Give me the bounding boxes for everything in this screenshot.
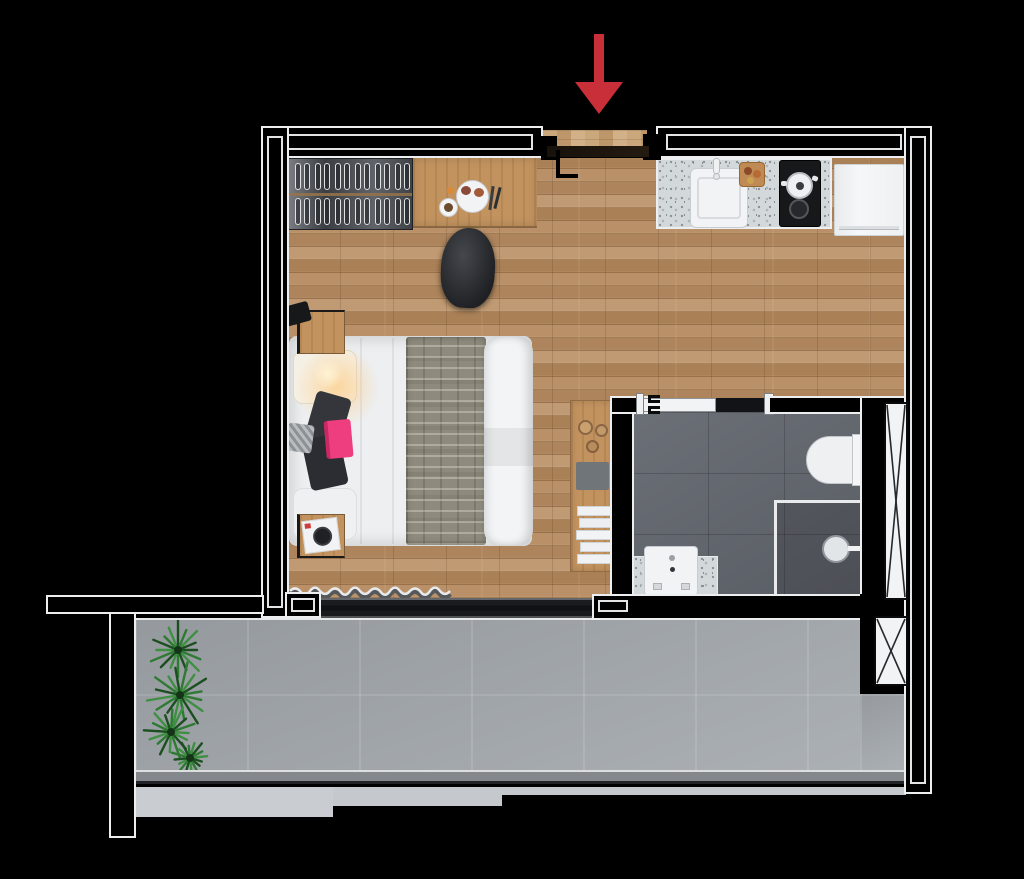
- vanity-drain: [670, 567, 675, 572]
- bathroom-door-handle-b: [648, 406, 660, 414]
- balcony-floor: [135, 618, 860, 772]
- wall-left-inset: [267, 136, 283, 608]
- wall-window-pier-inset: [291, 598, 315, 612]
- hanger-slot: [395, 198, 401, 225]
- bowl-1: [578, 420, 593, 435]
- shaft-x-icon: [886, 404, 906, 598]
- burner-2: [789, 199, 809, 219]
- hanger-slot: [344, 198, 350, 225]
- vinyl-record: [312, 526, 333, 547]
- balcony-ledge-step-c: [502, 787, 906, 795]
- wall-right: [904, 126, 932, 794]
- book-1: [577, 506, 612, 516]
- pot-lid-knob: [796, 182, 804, 190]
- hanger-slot: [355, 198, 361, 225]
- balcony-floor-right-notch: [860, 690, 906, 772]
- bread-item-3: [747, 177, 754, 184]
- book-3: [576, 530, 612, 540]
- hanger-slot: [395, 163, 401, 190]
- wall-top-right: [656, 126, 912, 158]
- wardrobe-rail: [288, 193, 413, 196]
- refrigerator-handle: [839, 226, 899, 230]
- breakfast-plate-large: [456, 180, 489, 213]
- duct-shaft-small: [874, 616, 908, 686]
- hanger-slot: [364, 198, 370, 225]
- sink-basin: [697, 177, 741, 219]
- vanity-faucet: [669, 555, 675, 561]
- faucet-base: [713, 173, 720, 180]
- hanger-slot: [355, 163, 361, 190]
- lamp-glow-core: [314, 360, 342, 388]
- vanity-sink: [644, 546, 698, 596]
- pot-on-burner: [786, 172, 813, 199]
- hanger-slot: [384, 163, 390, 190]
- faucet: [713, 158, 720, 174]
- tablet: [576, 462, 609, 490]
- wall-window-pier: [285, 592, 321, 618]
- vanity-knob-1: [653, 583, 662, 590]
- wall-top-left-inset: [271, 134, 533, 150]
- hanger-slot: [295, 198, 301, 225]
- book-2: [579, 518, 612, 528]
- food-item-1: [461, 186, 471, 195]
- record-magazine: [301, 517, 341, 554]
- wall-bathroom-left: [610, 396, 634, 620]
- bowl-3: [586, 440, 599, 453]
- hanger-slot: [324, 163, 330, 190]
- floor-plan-canvas: [0, 0, 1024, 879]
- coffee-cup: [444, 203, 453, 212]
- balcony-ledge-step-b: [333, 787, 502, 806]
- balcony-ledge-step-a: [135, 787, 333, 817]
- potted-plant: [138, 620, 218, 770]
- wall-under-bathroom-inset: [598, 600, 628, 612]
- toilet: [806, 436, 858, 484]
- hanger-slot: [315, 198, 321, 225]
- bathroom-door-cap-left: [636, 393, 644, 415]
- book-5: [577, 554, 611, 564]
- bread-item-2: [753, 170, 761, 178]
- entrance-door: [547, 146, 649, 158]
- hanger-slot: [344, 163, 350, 190]
- hanger-slot: [295, 163, 301, 190]
- bread-item: [744, 167, 752, 175]
- shower-head: [822, 535, 850, 563]
- hanger-slot: [304, 198, 310, 225]
- hanger-slot: [335, 198, 341, 225]
- hanger-slot: [315, 163, 321, 190]
- book-4: [580, 542, 611, 552]
- hanger-slot: [324, 198, 330, 225]
- hanger-slot: [364, 163, 370, 190]
- wall-left: [261, 126, 289, 618]
- wing-wall-horizontal: [46, 595, 264, 614]
- vanity-knob-2: [681, 583, 690, 590]
- hanger-slot: [384, 198, 390, 225]
- striped-cloth: [285, 422, 315, 453]
- hanger-slot: [304, 163, 310, 190]
- pink-accent-item: [323, 419, 353, 459]
- entrance-arrow: [563, 30, 635, 118]
- blanket: [406, 337, 486, 545]
- pot-handle-left: [781, 181, 787, 186]
- bathroom-door-handle-a: [648, 395, 660, 403]
- shaft-x-icon: [876, 618, 906, 684]
- wall-top-left: [261, 126, 543, 158]
- bowl-2: [595, 424, 608, 437]
- duvet-pinch: [484, 428, 533, 466]
- duct-shaft-tall: [884, 402, 908, 600]
- door-handle-foot: [556, 174, 578, 178]
- refrigerator: [834, 164, 904, 236]
- hanger-slot: [404, 163, 410, 190]
- hanger-slot: [404, 198, 410, 225]
- red-label: [304, 523, 311, 529]
- wardrobe: [287, 158, 413, 230]
- hanger-slot: [375, 198, 381, 225]
- hanger-slot: [375, 163, 381, 190]
- wing-wall-vertical: [109, 612, 136, 838]
- cutting-board: [739, 162, 765, 187]
- hanger-slot: [335, 163, 341, 190]
- balcony-railing: [135, 770, 906, 784]
- sliding-glass-door: [321, 598, 593, 618]
- wall-top-right-inset: [666, 134, 902, 150]
- orange-fruit: [447, 187, 454, 194]
- bed-crease-2: [392, 338, 394, 544]
- food-item-2: [474, 188, 484, 197]
- wall-right-inset: [910, 136, 926, 784]
